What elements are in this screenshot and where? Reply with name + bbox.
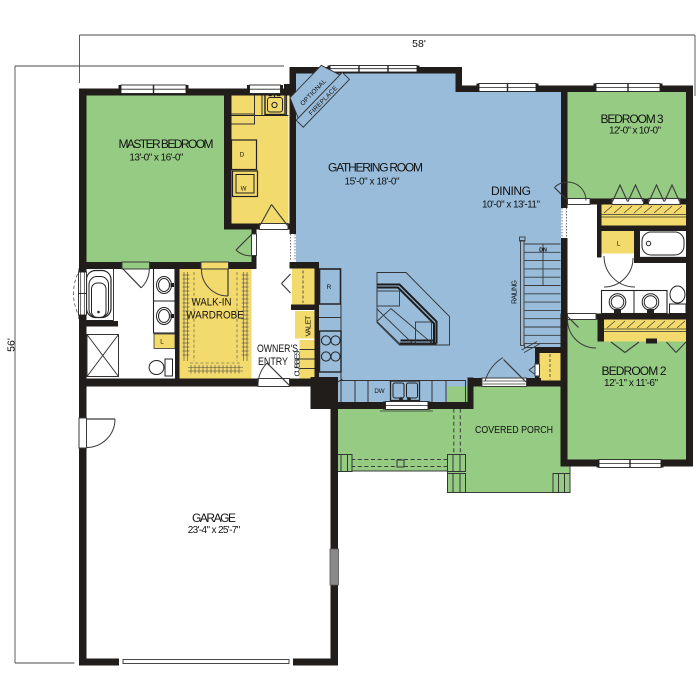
- svg-text:L: L: [617, 241, 621, 248]
- svg-text:COVERED PORCH: COVERED PORCH: [475, 424, 553, 436]
- svg-text:R: R: [327, 284, 332, 291]
- svg-text:MASTER BEDROOM: MASTER BEDROOM: [119, 137, 214, 151]
- svg-text:D: D: [240, 152, 245, 159]
- svg-text:DW: DW: [374, 388, 384, 395]
- svg-text:WALK-IN: WALK-IN: [192, 297, 232, 309]
- svg-text:DN: DN: [539, 248, 547, 254]
- svg-text:WARDROBE: WARDROBE: [186, 310, 244, 322]
- svg-text:W: W: [241, 186, 247, 193]
- svg-text:CUBBIES: CUBBIES: [292, 351, 301, 377]
- svg-text:23'-4" x 25'-7": 23'-4" x 25'-7": [188, 525, 241, 536]
- svg-text:58': 58': [412, 38, 426, 50]
- svg-text:56': 56': [6, 338, 18, 352]
- svg-text:L: L: [160, 339, 164, 346]
- svg-text:15'-0" x 18'-0": 15'-0" x 18'-0": [345, 177, 400, 188]
- svg-text:RAILING: RAILING: [512, 280, 519, 304]
- svg-text:VALET: VALET: [303, 315, 312, 336]
- svg-text:12'-0" x 10'-0": 12'-0" x 10'-0": [609, 126, 661, 137]
- svg-text:BEDROOM 2: BEDROOM 2: [602, 364, 667, 378]
- svg-text:ENTRY: ENTRY: [258, 356, 289, 368]
- svg-text:10'-0" x 13'-11": 10'-0" x 13'-11": [482, 200, 540, 211]
- svg-text:GARAGE: GARAGE: [192, 511, 236, 525]
- svg-text:DINING: DINING: [491, 184, 531, 198]
- svg-text:BEDROOM 3: BEDROOM 3: [601, 112, 664, 126]
- svg-text:13'-0" x 16'-0": 13'-0" x 16'-0": [129, 153, 183, 164]
- svg-text:GATHERING ROOM: GATHERING ROOM: [328, 161, 423, 175]
- svg-text:12'-1" x 11'-6": 12'-1" x 11'-6": [604, 378, 658, 389]
